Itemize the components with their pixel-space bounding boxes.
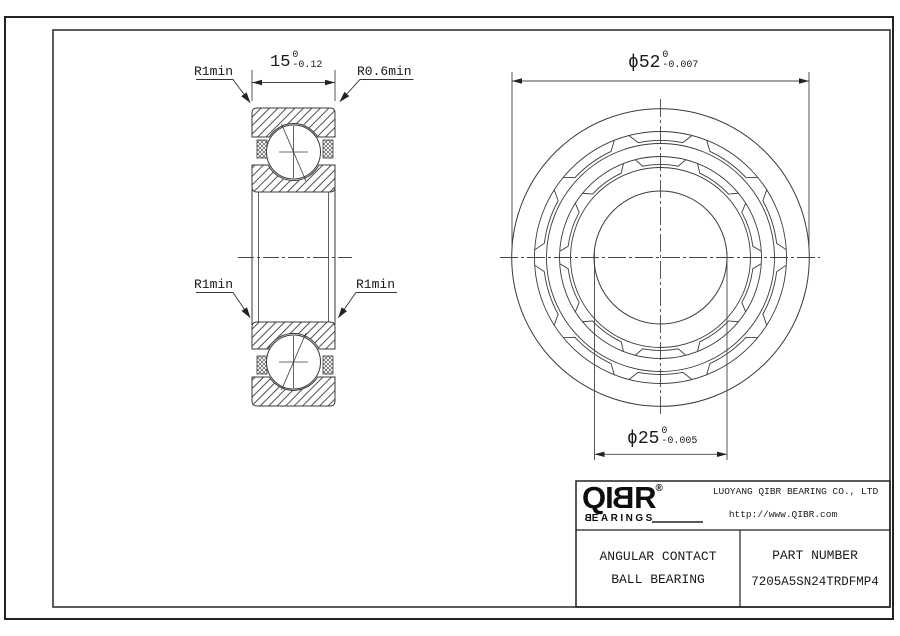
outer-diameter-tolerance: 0 -0.007 bbox=[662, 51, 698, 71]
bore-edges bbox=[252, 189, 335, 325]
logo-wordmark: QIBR® bbox=[582, 484, 663, 512]
sheet-border bbox=[5, 17, 893, 619]
width-dimension bbox=[252, 70, 335, 101]
bore-diameter-text: ϕ25 0 -0.005 bbox=[627, 429, 697, 449]
product-name-line1: ANGULAR CONTACT bbox=[576, 549, 740, 564]
drawing-sheet: 15 0 -0.12 R1min R0.6min R1min R1min ϕ52… bbox=[0, 0, 900, 636]
registered-mark: ® bbox=[656, 483, 663, 494]
company-name: LUOYANG QIBR BEARING CO., LTD bbox=[703, 486, 888, 497]
diameter-symbol: ϕ bbox=[627, 429, 638, 449]
width-tolerance: 0 -0.12 bbox=[292, 51, 322, 71]
part-number-label: PART NUMBER bbox=[740, 548, 890, 563]
bore-diameter-tolerance: 0 -0.005 bbox=[661, 427, 697, 447]
company-logo: QIBR® BEARINGS bbox=[582, 484, 663, 524]
front-view bbox=[500, 99, 820, 414]
company-website: http://www.QIBR.com bbox=[703, 509, 863, 520]
drawing-canvas bbox=[0, 0, 900, 636]
width-dimension-text: 15 0 -0.12 bbox=[270, 53, 322, 73]
section-view bbox=[238, 108, 352, 406]
part-number-value: 7205A5SN24TRDFMP4 bbox=[740, 575, 890, 589]
fillet-label-top-right: R0.6min bbox=[357, 64, 412, 79]
front-view-centerlines bbox=[500, 99, 820, 414]
fillet-label-bottom-right: R1min bbox=[356, 277, 395, 292]
width-value: 15 bbox=[270, 53, 290, 73]
fillet-label-bottom-left: R1min bbox=[194, 277, 233, 292]
diameter-symbol: ϕ bbox=[628, 53, 639, 73]
product-name-line2: BALL BEARING bbox=[576, 572, 740, 587]
outer-diameter-text: ϕ52 0 -0.007 bbox=[628, 53, 698, 73]
fillet-label-top-left: R1min bbox=[194, 64, 233, 79]
